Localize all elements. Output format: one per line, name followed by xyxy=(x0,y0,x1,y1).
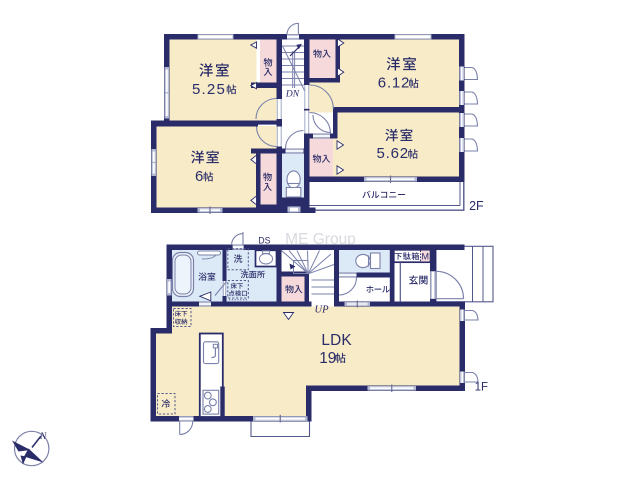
svg-text:M: M xyxy=(421,251,429,261)
svg-text:LDK: LDK xyxy=(321,332,352,349)
svg-text:19: 19 xyxy=(319,350,336,367)
svg-text:1F: 1F xyxy=(475,382,488,394)
svg-text:6.12: 6.12 xyxy=(378,75,410,92)
svg-text:6: 6 xyxy=(195,168,203,185)
svg-text:DS: DS xyxy=(258,236,270,246)
svg-text:UP: UP xyxy=(315,304,330,315)
svg-text:5.25: 5.25 xyxy=(192,81,226,98)
svg-text:N: N xyxy=(39,432,47,442)
svg-text:DN: DN xyxy=(285,90,300,100)
svg-text:5.62: 5.62 xyxy=(376,145,408,162)
svg-text:2F: 2F xyxy=(469,199,484,213)
